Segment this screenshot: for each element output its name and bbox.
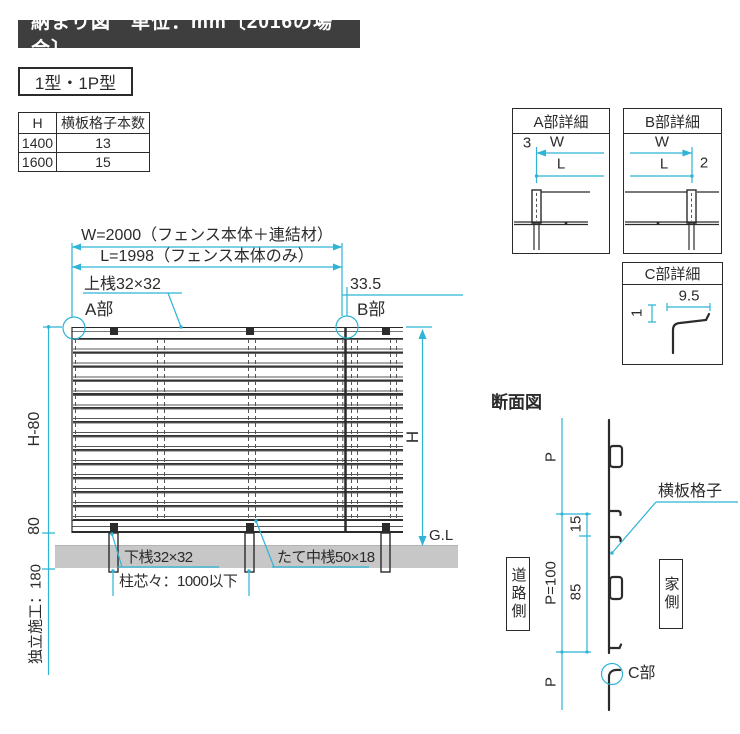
vertical-mid-rails <box>76 339 397 520</box>
detail-b-dim-w: W <box>655 133 669 150</box>
post-right <box>381 533 390 572</box>
dim-embed-label: 独立施工：180 <box>27 564 44 664</box>
dim-w-label: W=2000（フェンス本体＋連結材） <box>81 227 333 245</box>
mid-rail-label: たて中桟50×18 <box>277 549 375 566</box>
post-pitch-label: 柱芯々：1000以下 <box>119 573 237 590</box>
drawing-overlay <box>0 0 740 734</box>
dim-335-label: 33.5 <box>350 276 381 294</box>
post-brackets <box>110 328 390 532</box>
detail-b-dim-2: 2 <box>700 154 708 171</box>
dim-l-label: L=1998（フェンス本体のみ） <box>100 248 314 266</box>
road-side-box: 道路側 <box>506 557 530 631</box>
detail-b-dim-l: L <box>660 155 668 172</box>
section-title: 断面図 <box>491 393 542 413</box>
section-clip-bottom <box>610 577 622 599</box>
section-dim-p-bottom: P <box>542 677 559 687</box>
detail-c-dim-1: 1 <box>628 309 645 317</box>
bottom-rail-label: 下桟32×32 <box>124 549 193 566</box>
section-part-c-label: C部 <box>628 665 656 683</box>
c-detail-profile <box>673 314 709 353</box>
section-dim-15: 15 <box>567 516 584 533</box>
part-c-circle <box>602 664 623 685</box>
dim-h-minus-80-label: H-80 <box>26 412 44 447</box>
section-slat-label: 横板格子 <box>658 483 722 501</box>
detail-a-dim-w: W <box>550 133 564 150</box>
part-b-circle <box>336 316 358 338</box>
section-dim-p-top: P <box>542 452 559 462</box>
top-rail-label: 上桟32×32 <box>84 276 161 294</box>
dim-80-label: 80 <box>26 517 44 535</box>
detail-a-dim-l: L <box>557 155 565 172</box>
post-centerlines <box>537 193 692 221</box>
section-dim-p100: P=100 <box>542 561 559 605</box>
fence-installation-drawing: 納まり図 単位：mm〔2016の場合〕 1型・1P型 H 横板格子本数 1400… <box>0 0 740 734</box>
detail-b-dot <box>657 222 660 225</box>
part-a-circle <box>63 317 85 339</box>
house-side-box: 家側 <box>659 559 683 629</box>
profile-linework <box>609 314 709 710</box>
post-middle <box>245 533 254 572</box>
dim-h-label: H <box>403 431 423 443</box>
section-clip-top <box>610 446 622 467</box>
ground-level-label: G.L <box>429 527 453 544</box>
section-dim-85: 85 <box>567 584 584 601</box>
detail-c-dim-95: 9.5 <box>679 287 700 304</box>
part-b-label: B部 <box>357 300 385 320</box>
detail-a-dot <box>565 222 568 225</box>
detail-a-dim-3: 3 <box>523 134 531 151</box>
part-a-label: A部 <box>85 300 113 320</box>
